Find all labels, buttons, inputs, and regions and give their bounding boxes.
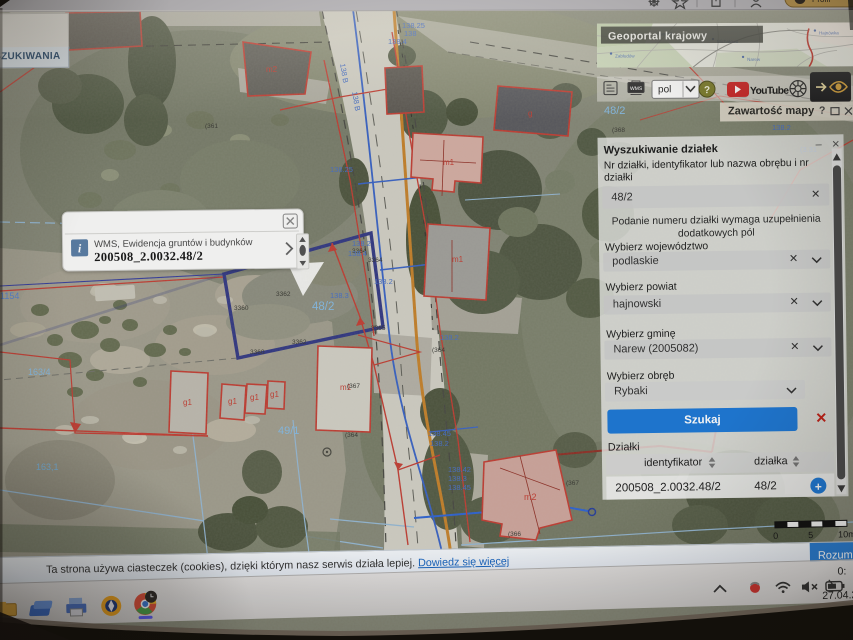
svg-text:Profil: Profil xyxy=(812,0,830,4)
svg-text:?: ? xyxy=(704,85,710,96)
svg-text:Hajnówka: Hajnówka xyxy=(819,30,839,35)
svg-text:Narew: Narew xyxy=(747,57,761,62)
svg-text:pol: pol xyxy=(658,84,671,95)
svg-text:27.04.2: 27.04.2 xyxy=(822,589,853,602)
svg-text:0: 0 xyxy=(773,531,778,541)
svg-text:Zabłudów: Zabłudów xyxy=(615,53,635,58)
svg-text:WMS: WMS xyxy=(630,86,643,92)
svg-text:Geoportal krajowy: Geoportal krajowy xyxy=(608,30,707,43)
svg-text:YouTube: YouTube xyxy=(750,86,789,97)
svg-text:10m: 10m xyxy=(838,529,853,539)
svg-text:5: 5 xyxy=(808,530,813,540)
svg-text:0:: 0: xyxy=(837,565,846,577)
